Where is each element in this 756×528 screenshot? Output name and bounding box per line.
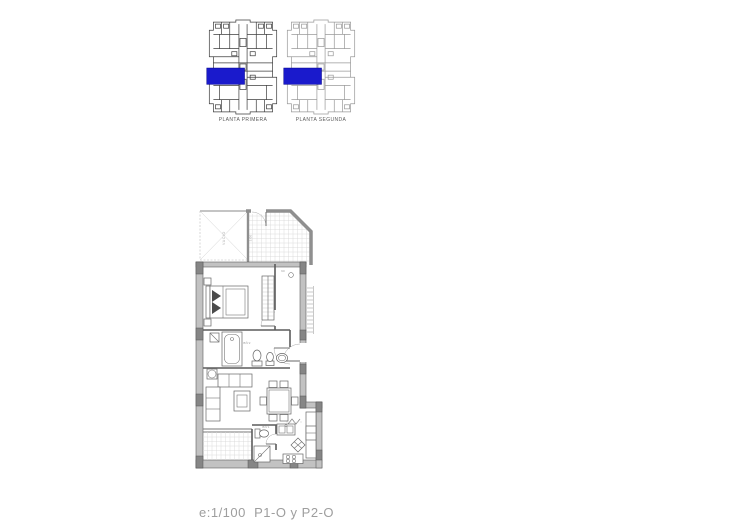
stove bbox=[283, 454, 303, 464]
wardrobe bbox=[262, 276, 274, 320]
dining-table bbox=[267, 388, 291, 414]
entrance-opening bbox=[299, 343, 307, 362]
bidet bbox=[266, 352, 274, 365]
bathroom-small: BÑ'1 bbox=[254, 424, 276, 462]
void-label: VACIO bbox=[222, 231, 226, 245]
shower bbox=[254, 446, 270, 462]
hall-fixture bbox=[289, 273, 294, 278]
bedroom bbox=[204, 264, 275, 330]
dining-area bbox=[260, 381, 298, 421]
chair bbox=[269, 381, 277, 388]
mini-floorplan-drawing bbox=[287, 20, 354, 114]
wall-top bbox=[196, 262, 306, 267]
terrace-top: 3.00 bbox=[246, 209, 312, 266]
void-area: VACIO bbox=[200, 211, 248, 260]
bed bbox=[210, 286, 248, 318]
building-plan-planta-segunda bbox=[283, 18, 359, 116]
terrace-bottom bbox=[203, 429, 252, 460]
terrace-dimension: 3.00 bbox=[249, 235, 253, 242]
chair bbox=[280, 381, 288, 388]
unit-highlight-p1 bbox=[207, 68, 245, 84]
scanned-floorplan-page: PLANTA PRIMERA PLANTA SEGUNDA VACIO bbox=[0, 0, 756, 528]
unit-highlight-p2 bbox=[284, 68, 322, 84]
mini-floorplan-drawing bbox=[209, 20, 276, 114]
toilet-small bbox=[255, 429, 269, 438]
main-bath-label: BÑ'2 bbox=[243, 340, 250, 345]
caption-planta-primera: PLANTA PRIMERA bbox=[205, 117, 281, 123]
caption-planta-segunda: PLANTA SEGUNDA bbox=[283, 117, 359, 123]
living-room bbox=[206, 369, 252, 421]
party-wall-hatch bbox=[307, 286, 314, 334]
folding-door-symbol bbox=[288, 419, 300, 424]
terrace-door-arc bbox=[252, 212, 266, 226]
nightstand bbox=[204, 319, 211, 326]
bed-headboard bbox=[206, 286, 210, 318]
terrace-door-opening bbox=[251, 209, 266, 215]
terrace-wall-chamfer bbox=[290, 211, 312, 233]
corner-unit bbox=[291, 438, 305, 452]
kitchen-sink-unit bbox=[277, 424, 295, 435]
bathroom-main: BÑ'2 bbox=[203, 330, 290, 368]
door-dimension: 90 bbox=[281, 269, 285, 273]
toilet bbox=[252, 350, 262, 366]
chair bbox=[292, 397, 299, 405]
bathtub bbox=[222, 332, 242, 366]
small-bath-label: BÑ'1 bbox=[262, 424, 269, 429]
side-table bbox=[207, 369, 217, 379]
terrace-bottom-tiles bbox=[203, 432, 252, 460]
chair bbox=[269, 415, 277, 422]
building-plan-planta-primera bbox=[205, 18, 281, 116]
nightstand bbox=[204, 278, 211, 285]
sink bbox=[276, 353, 287, 362]
apartment-floorplan: VACIO bbox=[190, 198, 360, 470]
chair bbox=[280, 415, 288, 422]
wall-left bbox=[196, 262, 203, 468]
chair bbox=[260, 397, 267, 405]
scale-caption: e:1/100 P1-O y P2-O bbox=[199, 505, 334, 520]
coffee-table bbox=[234, 391, 250, 411]
